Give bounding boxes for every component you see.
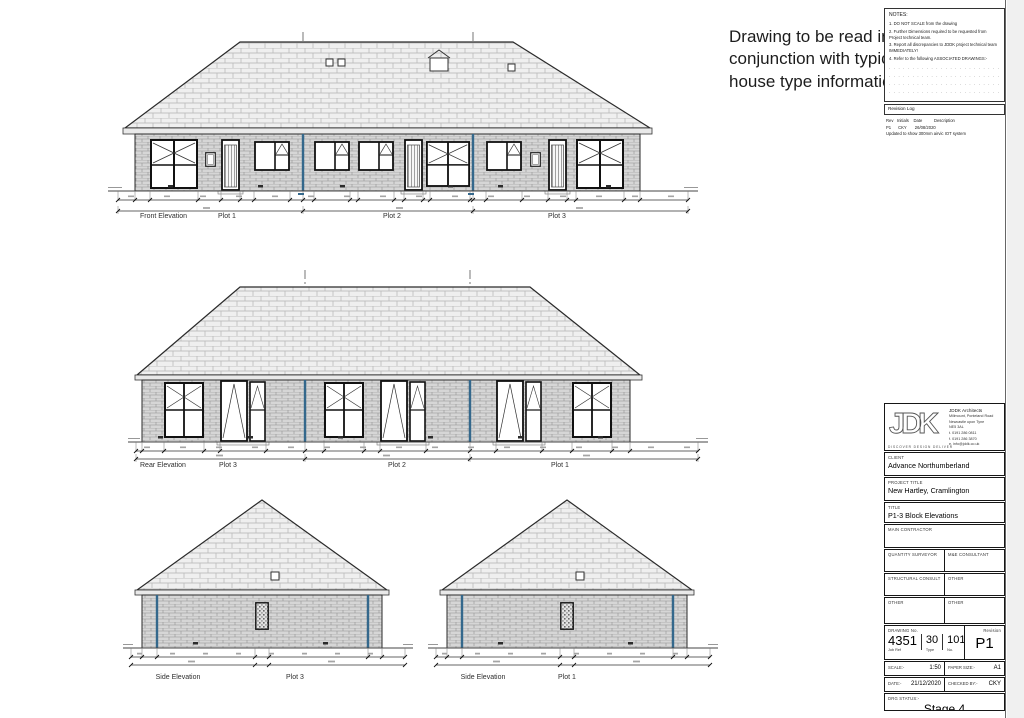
front-roof [125, 42, 650, 128]
title-box: TITLE P1-3 Block Elevations [884, 502, 1005, 523]
checked-by-value: CKY [989, 681, 1001, 687]
side-elevation-right-drawing [428, 478, 718, 670]
consultant-box: M&E CONSULTANT [944, 549, 1005, 572]
consultant-label: OTHER [885, 598, 944, 605]
side-right-window [561, 603, 573, 629]
revision-log-header: Revision Log [884, 104, 1005, 115]
firm-details: JDDK Architects Millmount, Ponteland Roa… [946, 407, 1001, 447]
revision-log-row: P1 CKY 26/08/2020 [886, 125, 1005, 132]
notes-item: 4. Refer to the following ASSOCIATED DRA… [889, 56, 1000, 62]
titleblock-logo-box: JDK DISCOVER DESIGN DELIVER JDDK Archite… [884, 403, 1005, 451]
associated-drawings-placeholder: . . . . . . . . . . . . . . . . . . . . … [889, 81, 1000, 86]
type-value: 30 [926, 634, 938, 647]
sheet-no-sublabel: No. [947, 648, 965, 652]
notes-panel: NOTES: 1. DO NOT SCALE from the drawing … [884, 8, 1005, 102]
jddk-logo: JDK DISCOVER DESIGN DELIVER [888, 407, 946, 447]
divider [921, 634, 922, 650]
project-value: New Hartley, Cramlington [885, 485, 1004, 495]
rear-roof [137, 287, 640, 375]
side-right-roof-vent [576, 572, 584, 580]
side-left-window [256, 603, 268, 629]
revision-log-title: Revision Log [885, 105, 1004, 111]
side-right-dimensions [434, 648, 712, 667]
client-box: CLIENT Advance Northumberland [884, 452, 1005, 476]
rear-elevation-label: Rear Elevation [140, 462, 186, 469]
scale-box: SCALE:-1:50 [884, 661, 945, 676]
firm-contact-line: e. info@jddk.co.uk [949, 442, 1001, 448]
paper-size-box: PAPER SIZE:-A1 [944, 661, 1005, 676]
notes-title: NOTES: [889, 12, 1000, 18]
revision-log-entries: Rev Initials Date Description P1 CKY 26/… [886, 118, 1005, 138]
rear-plot2-label: Plot 2 [388, 462, 406, 469]
consultant-label: STRUCTURAL CONSULT [885, 574, 944, 581]
rear-plot1-label: Plot 1 [551, 462, 569, 469]
status-label: DRG STATUS:- [885, 694, 1004, 701]
front-elevation-drawing [108, 28, 698, 220]
side-left-roof [137, 500, 387, 590]
drawing-sheet: Front Elevation Plot 1 Plot 2 Plot 3 [0, 0, 1024, 718]
page-edge [1007, 0, 1024, 718]
scale-label: SCALE:- [888, 665, 904, 670]
consultant-label: OTHER [945, 598, 1004, 605]
main-contractor-box: MAIN CONTRACTOR [884, 524, 1005, 548]
scale-value: 1:50 [929, 665, 941, 671]
consultant-label: M&E CONSULTANT [945, 550, 1004, 557]
drawing-number-values: 4351 Job Ref 30 Type 101 No. [885, 633, 964, 652]
side-right-plot-label: Plot 1 [558, 674, 576, 681]
drawing-number-box: DRAWING No. 4351 Job Ref 30 Type 101 No. [884, 625, 965, 660]
side-left-dimensions [129, 648, 407, 667]
logo-tagline: DISCOVER DESIGN DELIVER [888, 445, 946, 449]
consultant-box: OTHER [944, 597, 1005, 624]
consultant-box: OTHER [944, 573, 1005, 596]
revision-log-columns: Rev Initials Date Description [886, 118, 1005, 125]
revision-box: Revision P1 [964, 625, 1005, 660]
associated-drawings-placeholder: . . . . . . . . . . . . . . . . . . . . … [889, 65, 1000, 70]
firm-website: jddk.co.uk [949, 449, 1001, 451]
date-value: 21/12/2020 [911, 681, 941, 687]
associated-drawings-placeholder: . . . . . . . . . . . . . . . . . . . . … [889, 73, 1000, 78]
side-left-roof-vent [271, 572, 279, 580]
rear-elevation-drawing [128, 266, 708, 464]
checked-by-box: CHECKED BY:-CKY [944, 677, 1005, 692]
revision-value: P1 [965, 635, 1004, 652]
job-ref-sublabel: Job Ref [888, 648, 917, 652]
notes-item: 1. DO NOT SCALE from the drawing [889, 21, 1000, 27]
consultant-label: QUANTITY SURVEYOR [885, 550, 944, 557]
divider [942, 634, 943, 650]
paper-size-label: PAPER SIZE:- [948, 665, 975, 670]
notes-item: 2. Further Dimensions required to be req… [889, 29, 1000, 41]
associated-drawings-placeholder: . . . . . . . . . . . . . . . . . . . . … [889, 89, 1000, 94]
side-right-roof [442, 500, 692, 590]
side-left-plot-label: Plot 3 [286, 674, 304, 681]
notes-item: 3. Report all discrepancies to JDDK proj… [889, 42, 1000, 54]
side-right-label: Side Elevation [461, 674, 506, 681]
project-box: PROJECT TITLE New Hartley, Cramlington [884, 477, 1005, 501]
firm-name: JDDK Architects [949, 407, 1001, 414]
status-box: DRG STATUS:- Stage 4 [884, 693, 1005, 711]
front-plot1-label: Plot 1 [218, 213, 236, 220]
jddk-logo-mark-icon: JDK [888, 407, 944, 439]
consultant-box: STRUCTURAL CONSULT [884, 573, 945, 596]
front-dimensions [116, 191, 690, 214]
svg-text:JDK: JDK [889, 408, 939, 439]
sheet-no-value: 101 [947, 634, 965, 647]
front-plot3-label: Plot 3 [548, 213, 566, 220]
side-elevation-left-drawing [123, 478, 413, 670]
date-box: DATE:-21/12/2020 [884, 677, 945, 692]
rear-fascia [135, 375, 642, 380]
revision-label: Revision [965, 626, 1004, 633]
status-value: Stage 4 [885, 702, 1004, 712]
job-ref-value: 4351 [888, 634, 917, 647]
paper-size-value: A1 [994, 665, 1001, 671]
front-plot2-label: Plot 2 [383, 213, 401, 220]
side-left-label: Side Elevation [156, 674, 201, 681]
side-right-fascia [440, 590, 694, 595]
checked-by-label: CHECKED BY:- [948, 681, 978, 686]
rear-plot3-label: Plot 3 [219, 462, 237, 469]
front-fascia [123, 128, 652, 134]
revision-log-row-description: Updated to show 300mm airvic IOT system [886, 131, 1005, 138]
date-label: DATE:- [888, 681, 901, 686]
client-value: Advance Northumberland [885, 460, 1004, 470]
consultant-box: QUANTITY SURVEYOR [884, 549, 945, 572]
front-elevation-label: Front Elevation [140, 213, 187, 220]
main-contractor-label: MAIN CONTRACTOR [885, 525, 1004, 532]
type-sublabel: Type [926, 648, 938, 652]
title-value: P1-3 Block Elevations [885, 510, 1004, 520]
consultant-box: OTHER [884, 597, 945, 624]
side-left-fascia [135, 590, 389, 595]
sheet-border-right [1005, 0, 1006, 718]
consultant-label: OTHER [945, 574, 1004, 581]
